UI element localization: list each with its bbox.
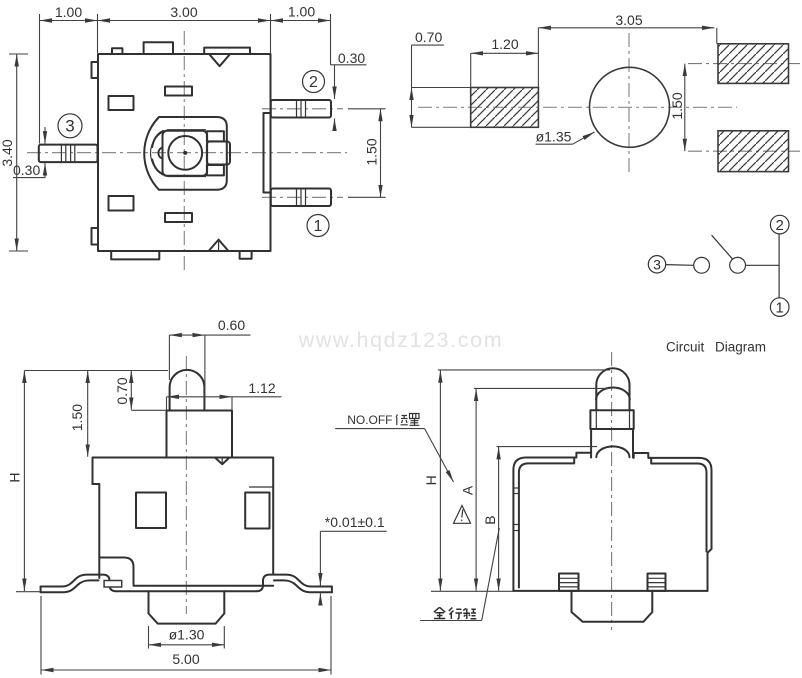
svg-text:B: B [482, 515, 498, 524]
svg-text:2: 2 [309, 74, 318, 91]
svg-text:1: 1 [776, 299, 784, 316]
svg-text:3: 3 [653, 256, 661, 272]
svg-text:1.12: 1.12 [248, 380, 275, 396]
svg-text:ø1.30: ø1.30 [169, 627, 205, 643]
svg-text:1.50: 1.50 [669, 92, 685, 119]
svg-text:3: 3 [65, 117, 74, 136]
svg-text:2: 2 [776, 217, 784, 234]
svg-text:0.30: 0.30 [338, 50, 365, 66]
svg-text:3.05: 3.05 [615, 12, 642, 28]
svg-text:NO.OFF: NO.OFF [347, 413, 392, 427]
svg-text:1.20: 1.20 [491, 36, 518, 52]
svg-text:Circuit Diagram: Circuit Diagram [666, 340, 766, 355]
svg-text:0.70: 0.70 [114, 377, 130, 404]
svg-text:0.70: 0.70 [415, 29, 442, 45]
svg-text:A: A [460, 485, 476, 495]
svg-text:*0.01±0.1: *0.01±0.1 [325, 514, 385, 530]
svg-text:0.60: 0.60 [218, 317, 245, 333]
svg-text:H: H [7, 473, 23, 483]
svg-text:1.00: 1.00 [288, 4, 315, 20]
svg-text:www.hqdz123.com: www.hqdz123.com [298, 328, 503, 352]
svg-text:3.00: 3.00 [170, 4, 197, 20]
svg-text:1.50: 1.50 [69, 404, 85, 431]
svg-text:ø1.35: ø1.35 [536, 129, 572, 145]
svg-text:1: 1 [314, 218, 323, 235]
svg-text:5.00: 5.00 [172, 651, 199, 667]
svg-text:1.00: 1.00 [55, 4, 82, 20]
svg-text:1.50: 1.50 [364, 138, 380, 165]
svg-text:0.30: 0.30 [13, 162, 40, 178]
svg-text:H: H [423, 475, 439, 485]
